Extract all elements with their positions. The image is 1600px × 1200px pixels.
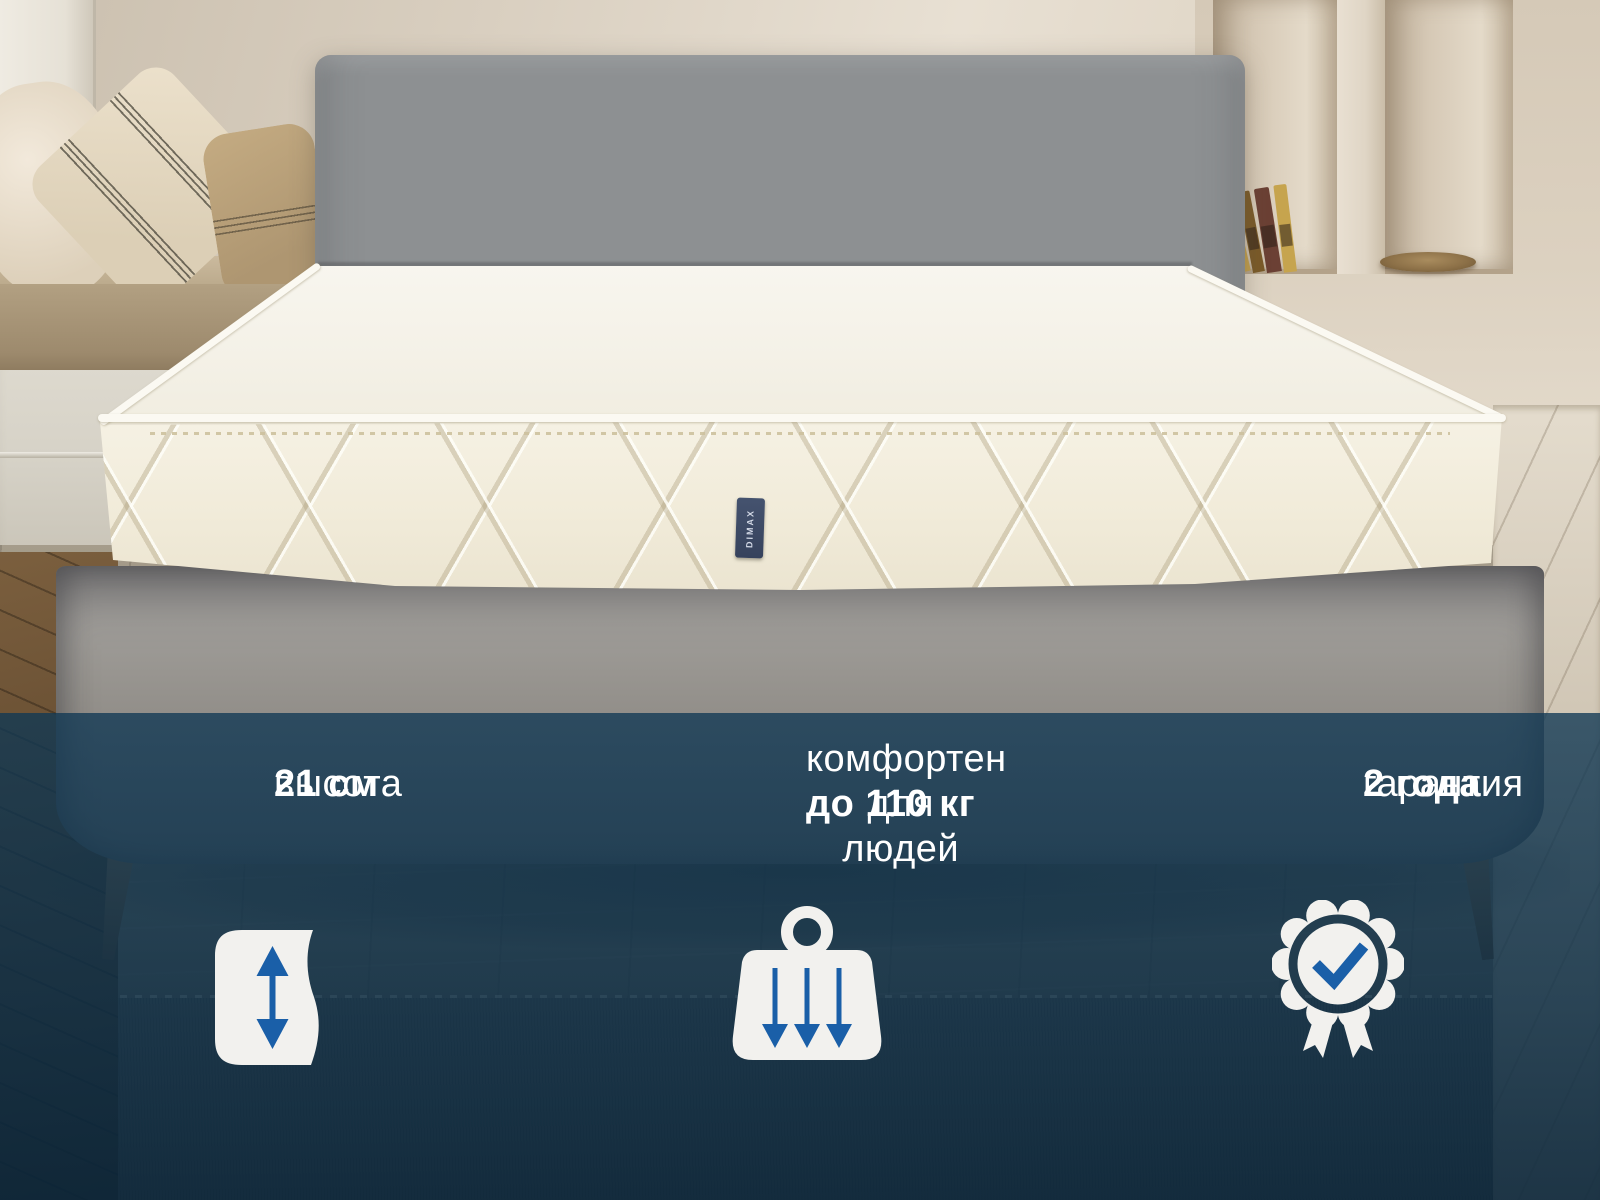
book-cover bbox=[1279, 223, 1293, 246]
mattress-front-face bbox=[95, 408, 1507, 604]
brand-tag-label: DIMAX bbox=[744, 508, 755, 547]
niche-pillar bbox=[1337, 0, 1385, 274]
mattress-seam-stitch bbox=[150, 432, 1450, 435]
down-arrows bbox=[762, 968, 852, 1048]
feature-comfort-line1: комфортен bbox=[806, 737, 1007, 782]
product-banner-image: DIMAX высота21 см комфортен для людейдо … bbox=[0, 0, 1600, 1200]
wall-niche-right bbox=[1385, 0, 1513, 274]
wood-slice-decor bbox=[1380, 252, 1476, 272]
mattress-piping-front bbox=[98, 414, 1506, 422]
book-cover bbox=[1245, 227, 1259, 251]
weight-load-icon bbox=[727, 902, 887, 1066]
mattress-brand-tag: DIMAX bbox=[735, 498, 765, 559]
feature-comfort-text: комфортен для людейдо 110 кг bbox=[606, 737, 1006, 782]
height-range-icon bbox=[215, 930, 340, 1065]
warranty-badge-icon bbox=[1272, 900, 1404, 1066]
feature-comfort-value: до 110 кг bbox=[806, 782, 975, 827]
book-cover bbox=[1261, 225, 1277, 249]
feature-height-value: 21 см bbox=[274, 762, 379, 807]
feature-banner: высота21 см комфортен для людейдо 110 кг… bbox=[0, 713, 1600, 1200]
feature-warranty-value: 2 года bbox=[1363, 762, 1481, 807]
